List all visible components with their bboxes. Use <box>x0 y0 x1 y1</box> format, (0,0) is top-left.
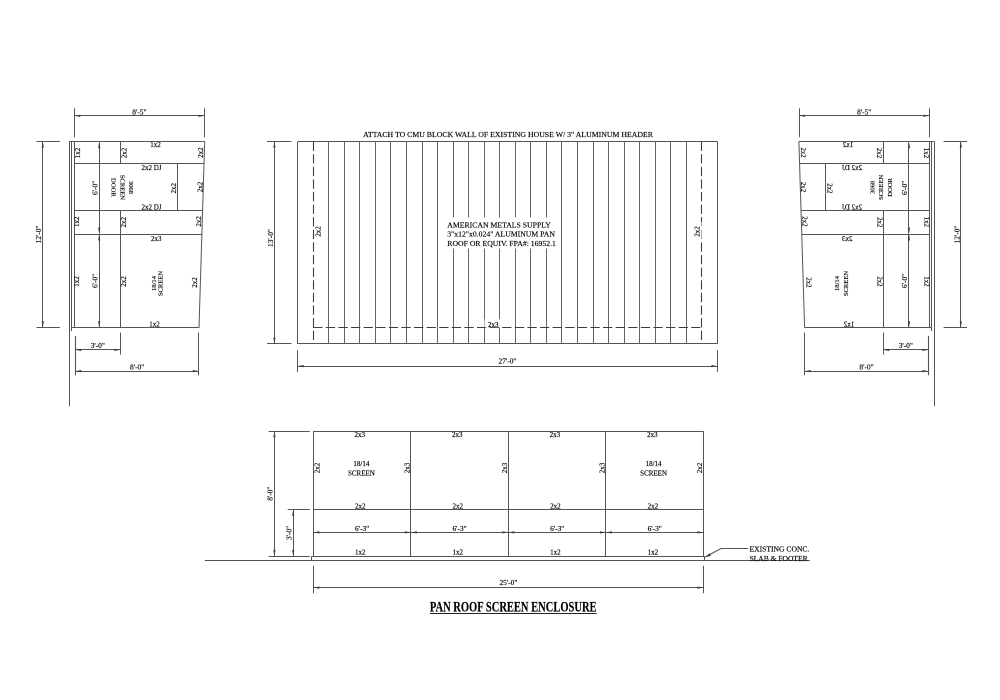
svg-text:2x2: 2x2 <box>170 183 178 194</box>
svg-text:2x2: 2x2 <box>120 147 128 158</box>
svg-text:2x2: 2x2 <box>550 503 561 511</box>
svg-text:2x2: 2x2 <box>191 277 199 288</box>
svg-text:SCREEN: SCREEN <box>878 175 885 201</box>
svg-text:6'-0": 6'-0" <box>91 274 100 288</box>
svg-text:27'-0": 27'-0" <box>499 357 517 366</box>
svg-text:2x2: 2x2 <box>876 276 883 287</box>
svg-text:6'-3": 6'-3" <box>550 524 564 533</box>
svg-text:SCREEN: SCREEN <box>118 175 125 201</box>
svg-text:8'-0": 8'-0" <box>130 362 144 371</box>
svg-text:1x2: 1x2 <box>550 549 561 557</box>
svg-text:2x2: 2x2 <box>196 181 204 192</box>
svg-text:1x2: 1x2 <box>355 549 366 557</box>
svg-text:2x3: 2x3 <box>550 431 561 439</box>
svg-text:2x3: 2x3 <box>403 462 411 473</box>
svg-text:12'-0": 12'-0" <box>34 226 43 244</box>
svg-text:12'-0": 12'-0" <box>952 226 961 244</box>
svg-text:13'-0": 13'-0" <box>266 229 275 247</box>
svg-text:1x2: 1x2 <box>843 320 854 328</box>
svg-text:SCREEN: SCREEN <box>843 271 850 297</box>
svg-text:2x3: 2x3 <box>501 462 509 473</box>
svg-text:2x3: 2x3 <box>842 235 853 243</box>
svg-text:1x2: 1x2 <box>842 141 853 149</box>
svg-text:18/14: 18/14 <box>834 275 841 291</box>
svg-text:1x2: 1x2 <box>922 217 929 228</box>
svg-text:1x2: 1x2 <box>922 276 929 287</box>
svg-text:1x2: 1x2 <box>149 320 160 328</box>
svg-text:2x2: 2x2 <box>875 148 882 159</box>
svg-text:1x2: 1x2 <box>73 276 81 287</box>
svg-text:2x2: 2x2 <box>355 503 366 511</box>
svg-text:8'-0": 8'-0" <box>266 487 275 501</box>
svg-text:8'-5": 8'-5" <box>132 108 146 117</box>
svg-text:2x3: 2x3 <box>488 321 499 329</box>
svg-text:2x2: 2x2 <box>120 216 128 227</box>
svg-text:2x2: 2x2 <box>197 147 205 158</box>
svg-text:2x2: 2x2 <box>696 462 704 473</box>
svg-text:6'-0": 6'-0" <box>900 181 909 195</box>
svg-text:25'-0": 25'-0" <box>499 578 517 587</box>
svg-text:18/14: 18/14 <box>353 460 369 468</box>
svg-text:6'-3": 6'-3" <box>452 524 466 533</box>
svg-text:SCREEN: SCREEN <box>640 469 667 477</box>
svg-text:DOOR: DOOR <box>110 178 117 197</box>
svg-text:6'-3": 6'-3" <box>648 524 662 533</box>
svg-text:6'-3": 6'-3" <box>355 524 369 533</box>
svg-text:2x2 DJ: 2x2 DJ <box>842 203 862 211</box>
svg-text:2x2: 2x2 <box>648 503 659 511</box>
svg-text:1x2: 1x2 <box>648 549 659 557</box>
svg-text:2x2: 2x2 <box>694 226 702 237</box>
svg-text:2x3: 2x3 <box>647 431 658 439</box>
svg-text:DOOR: DOOR <box>887 177 894 196</box>
svg-text:2x2: 2x2 <box>801 216 808 227</box>
svg-text:8'-5": 8'-5" <box>857 108 871 117</box>
svg-text:3'-0": 3'-0" <box>91 341 105 350</box>
svg-text:8'-0": 8'-0" <box>859 362 873 371</box>
svg-text:1x2: 1x2 <box>453 549 464 557</box>
svg-text:2x2: 2x2 <box>826 183 833 194</box>
svg-text:1x2: 1x2 <box>922 148 929 159</box>
svg-text:2x3: 2x3 <box>598 462 606 473</box>
svg-text:2x2: 2x2 <box>876 217 883 228</box>
svg-text:3"x12"x0.024" ALUMINUM PAN: 3"x12"x0.024" ALUMINUM PAN <box>447 230 555 239</box>
svg-text:6'-0": 6'-0" <box>91 181 100 195</box>
svg-text:18/14: 18/14 <box>646 460 662 468</box>
svg-text:2x2 DJ: 2x2 DJ <box>141 164 161 172</box>
svg-text:2x3: 2x3 <box>355 431 366 439</box>
svg-text:1x2: 1x2 <box>74 147 82 158</box>
svg-text:ATTACH TO CMU BLOCK WALL OF EX: ATTACH TO CMU BLOCK WALL OF EXISTING HOU… <box>363 130 654 139</box>
svg-text:SCREEN: SCREEN <box>158 271 165 297</box>
svg-text:3'-0": 3'-0" <box>285 526 294 540</box>
svg-text:2x2: 2x2 <box>453 503 464 511</box>
svg-text:2x2 DJ: 2x2 DJ <box>842 164 862 172</box>
svg-text:3068: 3068 <box>127 181 134 195</box>
svg-text:2x2: 2x2 <box>799 182 806 193</box>
svg-text:2x3: 2x3 <box>151 235 162 243</box>
svg-text:3068: 3068 <box>870 180 877 194</box>
svg-text:2x2 DJ: 2x2 DJ <box>141 203 161 211</box>
svg-text:SLAB & FOOTER: SLAB & FOOTER <box>750 554 809 563</box>
svg-text:2x2: 2x2 <box>805 277 812 288</box>
svg-text:EXISTING CONC.: EXISTING CONC. <box>750 544 810 553</box>
svg-text:2x2: 2x2 <box>195 216 203 227</box>
svg-text:2x2: 2x2 <box>799 147 806 158</box>
svg-text:1x2: 1x2 <box>73 216 81 227</box>
svg-text:6'-0": 6'-0" <box>900 274 909 288</box>
svg-text:2x2: 2x2 <box>315 226 323 237</box>
svg-text:ROOF OR EQUIV. FPA#: 16952.1: ROOF OR EQUIV. FPA#: 16952.1 <box>447 239 556 248</box>
svg-text:1x2: 1x2 <box>150 141 161 149</box>
svg-text:2x2: 2x2 <box>314 462 322 473</box>
svg-text:SCREEN: SCREEN <box>348 469 375 477</box>
svg-text:AMERICAN METALS SUPPLY: AMERICAN METALS SUPPLY <box>447 220 551 229</box>
svg-text:3'-0": 3'-0" <box>899 341 913 350</box>
svg-text:2x2: 2x2 <box>120 276 128 287</box>
svg-text:2x3: 2x3 <box>452 431 463 439</box>
